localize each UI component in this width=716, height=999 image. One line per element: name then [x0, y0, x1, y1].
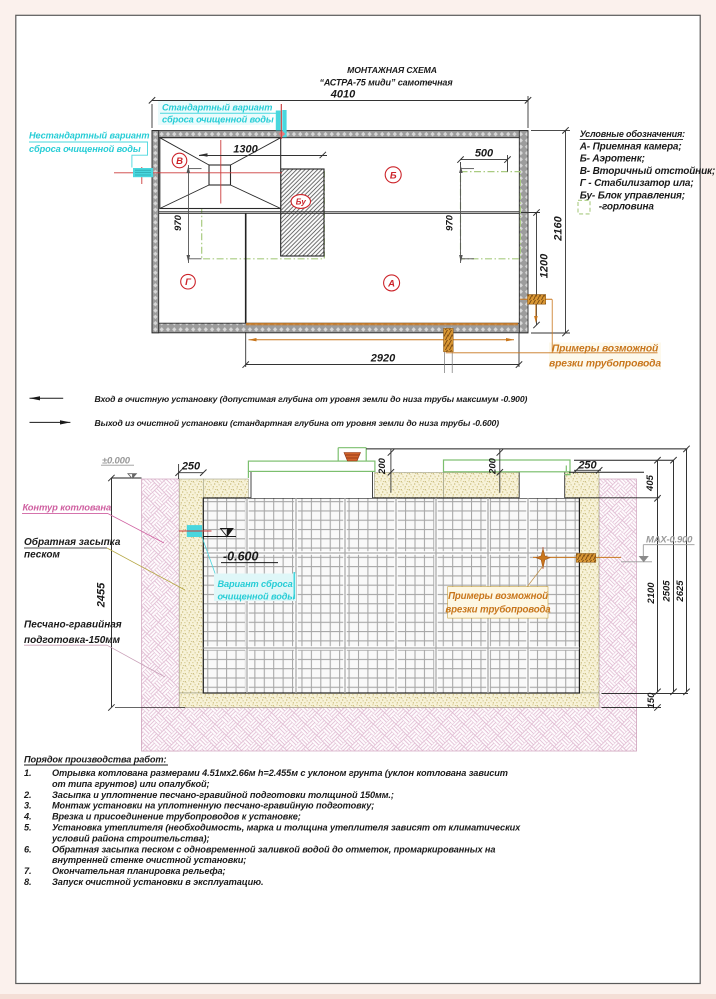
svg-text:Нестандартный вариант: Нестандартный вариант — [29, 131, 149, 141]
svg-text:Б: Б — [390, 170, 397, 181]
svg-text:Г - Стабилизатор ила;: Г - Стабилизатор ила; — [580, 177, 694, 189]
svg-text:В- Вторичный отстойник;: В- Вторичный отстойник; — [580, 166, 715, 177]
svg-text:-0.600: -0.600 — [223, 550, 258, 564]
svg-text:Стандартный вариант: Стандартный вариант — [162, 103, 272, 113]
svg-text:500: 500 — [475, 148, 494, 160]
svg-text:Монтаж установки на уплотненну: Монтаж установки на уплотненную песчано-… — [52, 801, 374, 811]
svg-text:Обратная засыпка: Обратная засыпка — [24, 536, 121, 548]
svg-text:6.: 6. — [24, 844, 31, 854]
svg-text:В: В — [176, 156, 183, 167]
svg-text:200: 200 — [377, 457, 388, 475]
svg-text:Бу: Бу — [296, 198, 307, 207]
svg-text:Условные обозначения:: Условные обозначения: — [580, 129, 685, 139]
svg-text:Контур котлована: Контур котлована — [23, 502, 112, 513]
svg-text:сброса очищенной воды: сброса очищенной воды — [162, 115, 274, 125]
svg-text:МОНТАЖНАЯ СХЕМА: МОНТАЖНАЯ СХЕМА — [347, 65, 437, 75]
svg-text:MAX-0.900: MAX-0.900 — [646, 535, 693, 546]
svg-text:970: 970 — [173, 214, 184, 231]
svg-text:2100: 2100 — [646, 582, 657, 605]
svg-text:2505: 2505 — [662, 580, 673, 603]
svg-text:от типа грунтов) или опалубкой: от типа грунтов) или опалубкой; — [52, 779, 209, 789]
svg-text:405: 405 — [645, 474, 656, 492]
svg-text:“АСТРА-75 миди” самотечная: “АСТРА-75 миди” самотечная — [319, 78, 453, 88]
svg-text:1200: 1200 — [539, 253, 551, 278]
svg-text:врезки трубопровода: врезки трубопровода — [445, 605, 551, 616]
svg-text:Примеры возможной: Примеры возможной — [448, 591, 548, 602]
svg-text:2.: 2. — [23, 790, 31, 800]
svg-text:1.: 1. — [24, 768, 31, 778]
svg-text:2920: 2920 — [370, 353, 396, 365]
svg-text:150: 150 — [646, 692, 657, 709]
svg-text:Выход из очистной установки (с: Выход из очистной установки (стандартная… — [95, 418, 500, 428]
svg-text:песком: песком — [24, 550, 61, 561]
svg-text:Б- Аэротенк;: Б- Аэротенк; — [580, 154, 645, 165]
svg-text:подготовка-150мм: подготовка-150мм — [24, 635, 121, 646]
svg-text:2160: 2160 — [553, 215, 565, 241]
svg-text:2625: 2625 — [675, 580, 686, 603]
svg-text:сброса очищенной воды: сброса очищенной воды — [29, 144, 141, 154]
svg-text:Отрывка котлована размерами 4.: Отрывка котлована размерами 4.51мх2.66м … — [52, 768, 508, 778]
svg-text:А- Приемная камера;: А- Приемная камера; — [579, 142, 682, 153]
svg-text:250: 250 — [181, 461, 201, 473]
svg-text:5.: 5. — [24, 823, 31, 833]
svg-text:3.: 3. — [24, 801, 31, 811]
svg-text:Вариант сброса: Вариант сброса — [218, 579, 293, 589]
svg-text:8.: 8. — [24, 877, 31, 887]
svg-text:очищенной воды: очищенной воды — [218, 592, 296, 602]
svg-text:Порядок производства работ:: Порядок производства работ: — [24, 755, 166, 765]
svg-text:2455: 2455 — [96, 582, 108, 608]
svg-text:Установка утеплителя (необходи: Установка утеплителя (необходимость, мар… — [52, 823, 521, 833]
svg-text:Запуск очистной установки в эк: Запуск очистной установки в эксплуатацию… — [52, 877, 263, 887]
svg-text:Засыпка и уплотнение песчано-г: Засыпка и уплотнение песчано-гравийной п… — [52, 790, 394, 800]
svg-text:970: 970 — [445, 214, 456, 231]
svg-text:Вход в очистную установку (доп: Вход в очистную установку (допустимая гл… — [95, 394, 528, 404]
svg-text:250: 250 — [577, 460, 597, 472]
svg-text:Примеры возможной: Примеры возможной — [552, 344, 659, 355]
svg-text:Врезка и присоединение трубопр: Врезка и присоединение трубопроводов к у… — [52, 812, 301, 822]
svg-text:А: А — [387, 278, 395, 289]
svg-text:Обратная засыпка песком с одно: Обратная засыпка песком с одновременной … — [52, 844, 495, 854]
svg-text:внутренней стенке очистной уст: внутренней стенке очистной установки; — [52, 855, 246, 865]
svg-text:условий района строительства);: условий района строительства); — [51, 833, 209, 843]
svg-text:4.: 4. — [23, 812, 31, 822]
svg-text:врезки трубопровода: врезки трубопровода — [549, 358, 661, 370]
svg-text:-горловина: -горловина — [599, 202, 655, 213]
svg-text:200: 200 — [488, 457, 499, 475]
svg-text:Окончательная планировка релье: Окончательная планировка рельефа; — [52, 866, 226, 876]
svg-text:Песчано-гравийная: Песчано-гравийная — [24, 620, 122, 631]
svg-text:1300: 1300 — [233, 144, 258, 156]
svg-text:7.: 7. — [24, 866, 31, 876]
svg-text:4010: 4010 — [330, 89, 356, 101]
svg-text:Бу- Блок управления;: Бу- Блок управления; — [580, 190, 685, 201]
